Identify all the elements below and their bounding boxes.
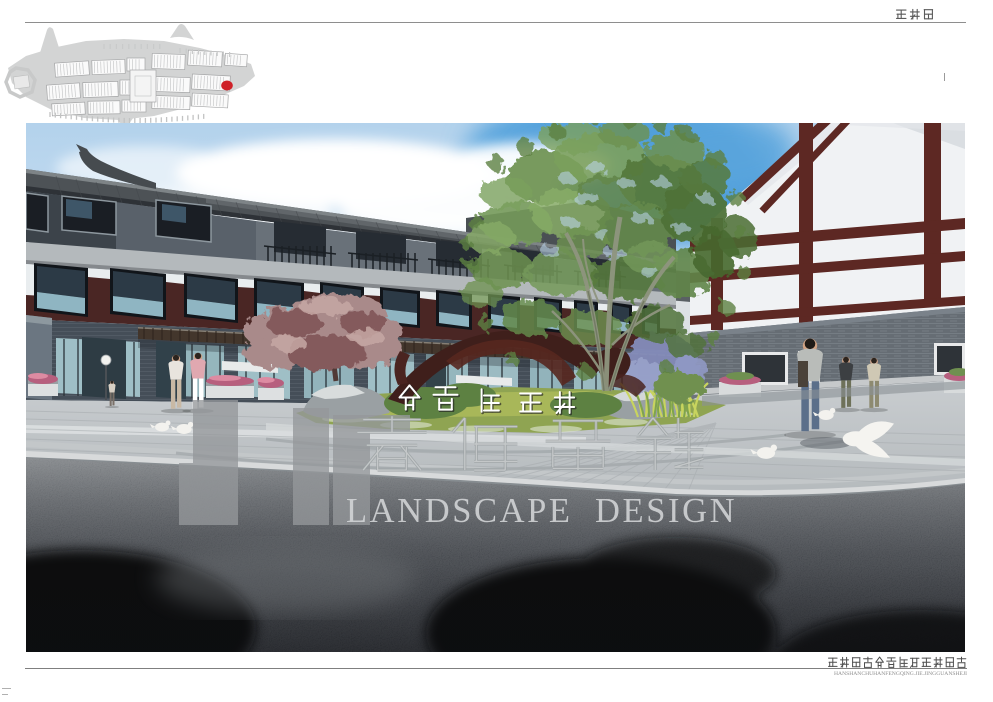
svg-text:LANDSCAPE DESIGN: LANDSCAPE DESIGN <box>346 492 737 530</box>
